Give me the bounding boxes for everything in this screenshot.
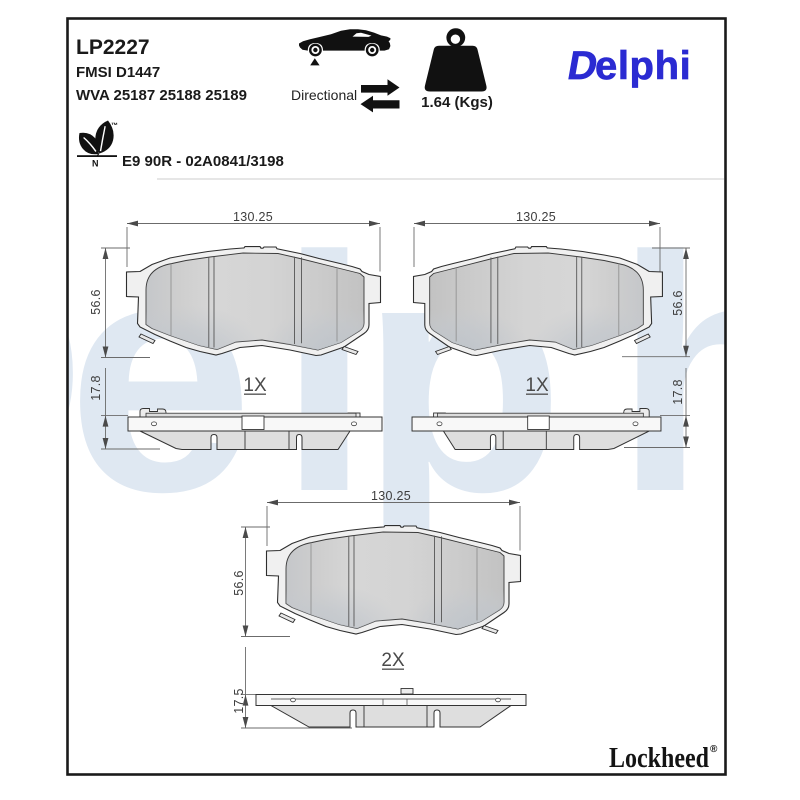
svg-text:1X: 1X	[243, 375, 267, 396]
svg-text:WVA 25187 25188 25189: WVA 25187 25188 25189	[76, 87, 247, 104]
svg-text:Delphi: Delphi	[0, 187, 800, 563]
svg-text:2X: 2X	[381, 650, 405, 671]
svg-text:17.5: 17.5	[232, 688, 246, 714]
svg-text:E9 90R - 02A0841/3198: E9 90R - 02A0841/3198	[122, 153, 284, 170]
svg-text:17.8: 17.8	[671, 379, 685, 405]
svg-text:™: ™	[111, 123, 118, 130]
svg-text:®: ®	[710, 744, 718, 755]
svg-text:56.6: 56.6	[232, 570, 246, 596]
svg-text:LP2227: LP2227	[76, 36, 150, 59]
svg-text:56.6: 56.6	[671, 290, 685, 316]
svg-text:56.6: 56.6	[89, 289, 103, 315]
svg-text:17.8: 17.8	[89, 375, 103, 401]
svg-text:130.25: 130.25	[233, 210, 273, 224]
svg-text:elphi: elphi	[595, 44, 691, 88]
svg-text:Lockheed: Lockheed	[609, 743, 709, 774]
svg-text:FMSI D1447: FMSI D1447	[76, 64, 160, 81]
svg-text:1X: 1X	[525, 375, 549, 396]
svg-text:1.64 (Kgs): 1.64 (Kgs)	[421, 94, 493, 111]
svg-text:130.25: 130.25	[516, 210, 556, 224]
svg-text:N: N	[92, 159, 99, 169]
svg-text:130.25: 130.25	[371, 489, 411, 503]
svg-text:Directional: Directional	[291, 87, 357, 103]
